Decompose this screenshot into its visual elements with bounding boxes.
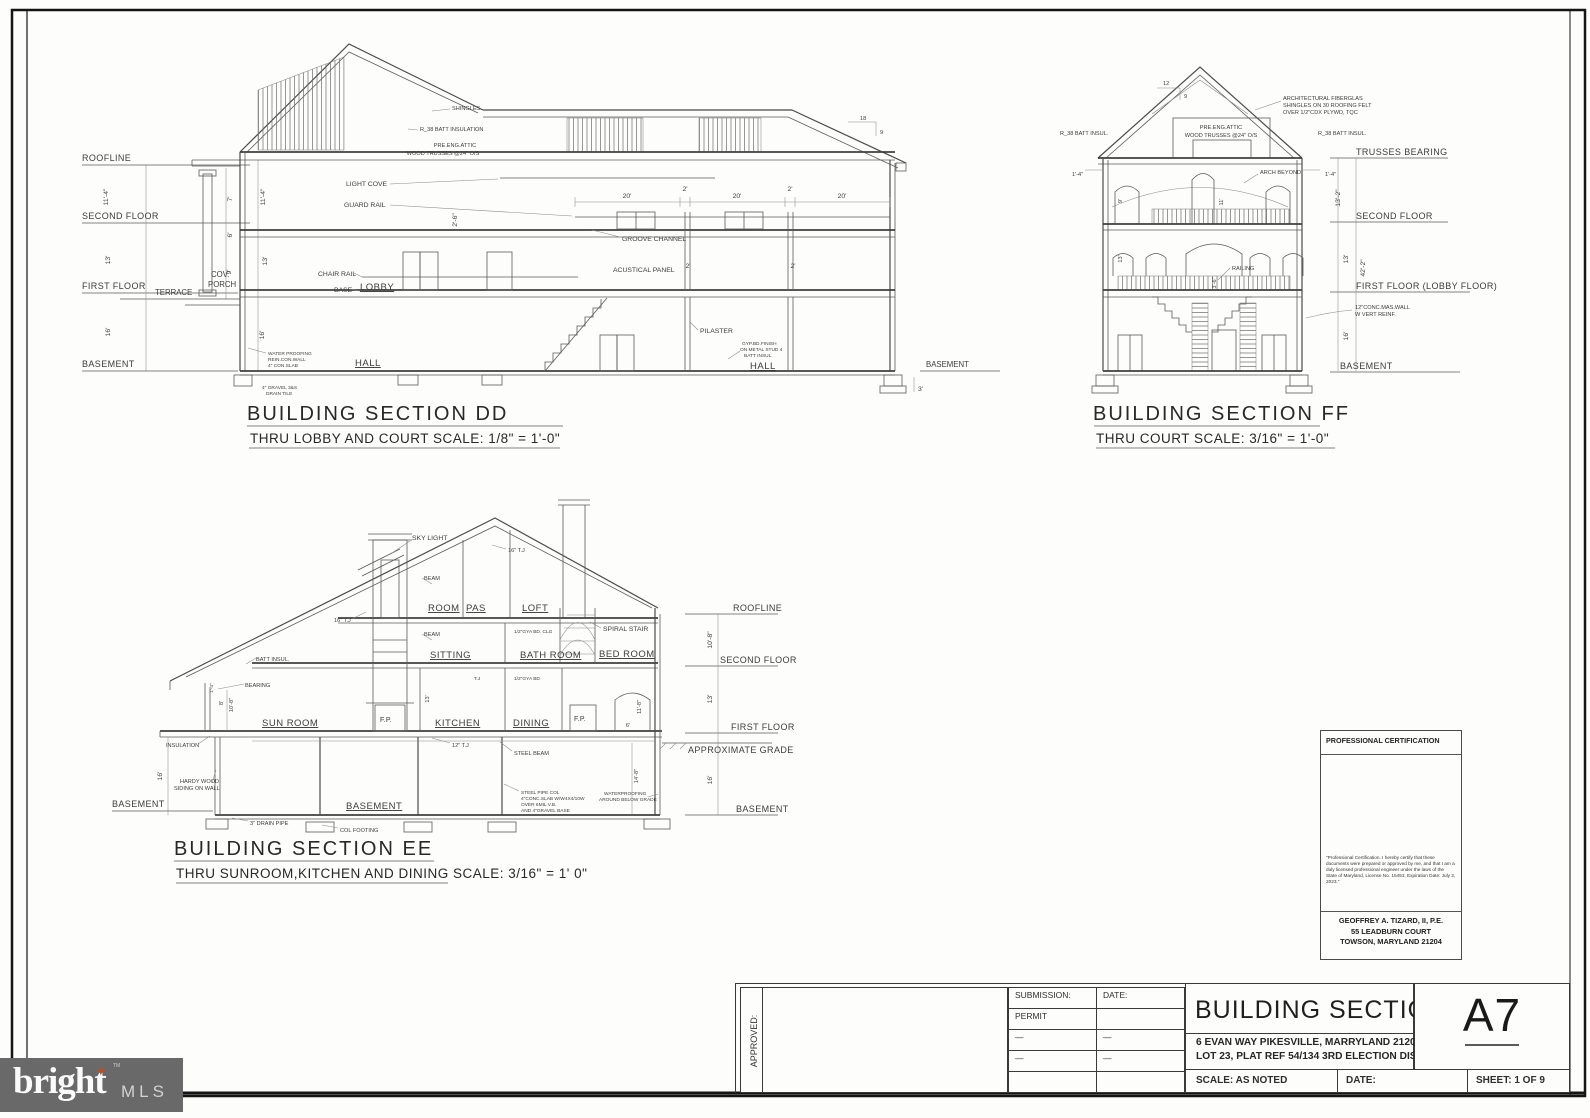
ee-room-bed: BED ROOM [599, 649, 655, 660]
dd-ann-lightcove: LIGHT COVE [346, 181, 388, 188]
dd-slope-9: 9 [880, 130, 883, 136]
dd-ann-batt: R_38 BATT INSULATION [420, 127, 483, 133]
bright-mls-logo: bright ✦ TM MLS [0, 1058, 183, 1112]
dd-title: BUILDING SECTION DD [247, 403, 508, 425]
ee-room-fp1: F.P. [380, 717, 392, 724]
engineer-address1: 55 LEADBURN COURT [1321, 927, 1461, 938]
sheet-number-underline [1465, 1044, 1519, 1046]
ff-slope-12: 12 [1163, 81, 1169, 87]
certification-body-text: "Professional Certification. I hereby ce… [1321, 855, 1461, 911]
ff-label-basement: BASEMENT [1340, 361, 1393, 371]
ee-dim-1-4: 1'-4" [209, 683, 215, 693]
dd-room-hall-left: HALL [355, 358, 381, 369]
dd-ann-attic1: PRE.ENG.ATTIC [434, 143, 476, 149]
ee-label-roofline: ROOFLINE [733, 603, 782, 613]
submission-dash: — [1009, 1051, 1096, 1071]
ee-ann-wp2: AROUND BELOW GRADE [599, 797, 657, 803]
dd-label-basement: BASEMENT [82, 359, 135, 369]
dd-dim-2-a: 2' [682, 186, 687, 193]
ff-subtitle: THRU COURT SCALE: 3/16" = 1'-0" [1096, 431, 1329, 446]
dd-ann-pilaster: PILASTER [700, 328, 733, 335]
dd-ann-porch: PORCH [208, 280, 236, 289]
titleblock-bottom-row: SCALE: AS NOTED DATE: SHEET: 1 OF 9 [1185, 1070, 1570, 1093]
dd-ann-gravel2: DRAIN TILE [266, 391, 292, 397]
ff-ann-shingles1: ARCHITECTURAL FIBERGLAS [1283, 96, 1363, 102]
dd-ann-gyp2: ON METAL STUD 4 [740, 347, 783, 353]
ee-ann-gyb2: 1/2"GYA BD [514, 676, 540, 682]
ee-ann-tj12: 12" T.J [452, 743, 469, 749]
dd-ann-attic2: WOOD TRUSSES @24" O/S [407, 151, 480, 157]
ee-room-room: ROOM [428, 603, 460, 614]
dd-dim-2-b: 2' [787, 186, 792, 193]
star-icon: ✦ [95, 1063, 107, 1080]
ee-room-bath: BATH ROOM [520, 650, 581, 661]
dd-label-first-floor: FIRST FLOOR [82, 281, 146, 291]
dd-dim-20-c: 20' [838, 193, 847, 200]
ee-room-sitting: SITTING [430, 650, 471, 661]
dd-dim-3: 3' [918, 386, 923, 393]
ff-dim-42-2: 42'-2" [1360, 259, 1367, 277]
ee-ann-tj: T.J [474, 676, 481, 682]
ff-ann-shingles3: OVER 1/2"CDX PLYWD, TQC [1283, 110, 1358, 116]
ff-ann-batt-right: R_38 BATT INSUL. [1318, 131, 1367, 137]
project-address-line1: 6 EVAN WAY PIKESVILLE, MARRYLAND 21208 [1186, 1034, 1413, 1048]
ff-label-first-floor: FIRST FLOOR (LOBBY FLOOR) [1356, 281, 1497, 291]
ee-room-loft: LOFT [522, 603, 548, 614]
engineer-name: GEOFFREY A. TIZARD, II, P.E. [1321, 916, 1461, 927]
dd-slope-18: 18 [860, 116, 866, 122]
ff-ann-railing: RAILING [1232, 266, 1254, 272]
ff-label-second-floor: SECOND FLOOR [1356, 211, 1433, 221]
sheet-count-label: SHEET: 1 OF 9 [1468, 1070, 1569, 1092]
table-row: — — [1009, 1050, 1184, 1071]
dd-ann-base: BASE [334, 287, 353, 294]
ff-dim-11: 11' [1219, 199, 1225, 206]
engineer-name-block: GEOFFREY A. TIZARD, II, P.E. 55 LEADBURN… [1321, 911, 1461, 948]
table-row: PERMIT [1009, 1008, 1184, 1029]
certification-blank-area [1321, 755, 1461, 855]
trademark-symbol: TM [113, 1063, 120, 1069]
date-dash: — [1096, 1030, 1184, 1050]
ee-dim-13-right: 13' [707, 695, 714, 704]
dd-label-second-floor: SECOND FLOOR [82, 211, 159, 221]
table-row: — — [1009, 1029, 1184, 1050]
ee-room-pas: PAS [466, 603, 486, 614]
dd-ann-wp1: WATER PROOFING [268, 351, 312, 357]
ee-label-first-floor: FIRST FLOOR [731, 722, 795, 732]
dd-dim-11-4-inner: 11'-4" [260, 188, 267, 205]
professional-certification-box: PROFESSIONAL CERTIFICATION "Professional… [1320, 730, 1462, 960]
ee-dim-10-8-right: 10'-8" [707, 631, 714, 649]
ee-room-basement: BASEMENT [346, 801, 402, 812]
permit-label: PERMIT [1009, 1009, 1096, 1029]
ff-dim-13: 13' [1343, 255, 1350, 264]
ff-dim-1-4-right: 1'-4" [1325, 172, 1336, 178]
dd-dim-13: 13' [105, 256, 112, 265]
drawing-sheet: ROOFLINE SECOND FLOOR FIRST FLOOR TERRAC… [0, 0, 1590, 1118]
approval-blank-box [762, 987, 1008, 1093]
ee-ann-gyb1: 1/2"GYA BD. CLG [514, 629, 553, 635]
sheet-number: A7 [1415, 988, 1569, 1042]
project-address-line2: LOT 23, PLAT REF 54/134 3RD ELECTION DIS… [1186, 1048, 1413, 1062]
table-row: SUBMISSION: DATE: [1009, 988, 1184, 1008]
date-label: DATE: [1096, 988, 1184, 1008]
ee-ann-insulation: INSULATION [166, 743, 199, 749]
ee-dim-8: 8' [219, 701, 225, 705]
ee-dim-16-right: 16' [707, 776, 714, 785]
dd-dim-7: 7' [227, 196, 234, 201]
dd-ann-gravel1: 4" GRAVEL 3&S [262, 385, 297, 391]
ee-ann-beam2: BEAM [424, 632, 440, 638]
ee-title: BUILDING SECTION EE [174, 838, 433, 860]
ee-ann-steelbeam: STEEL BEAM [514, 751, 549, 757]
ff-ann-attic1: PRE.ENG.ATTIC [1200, 125, 1242, 131]
dd-ann-wp2: REIN.CON.WALL [268, 357, 306, 363]
ff-ann-batt-left: R_38 BATT INSUL. [1060, 131, 1109, 137]
dd-ann-gyp3: BATT INSUL. [744, 353, 773, 359]
ff-dim-3-6: 3'-6" [1212, 277, 1218, 288]
ee-dim-14-8: 14'-8" [634, 769, 640, 783]
ee-ann-spiral: SPIRAL STAIR [603, 626, 648, 633]
ff-ann-shingles2: SHINGLES ON 30 ROOFING FELT [1283, 103, 1372, 109]
sheet-title: BUILDING SECTION [1186, 984, 1413, 1034]
section-ff: TRUSSES BEARING SECOND FLOOR FIRST FLOOR… [1060, 67, 1497, 448]
ee-ann-drain: 3" DRAIN PIPE [250, 821, 289, 827]
ee-ann-tj16-right: 16" T.J [508, 548, 525, 554]
ff-dim-9: 9' [1118, 199, 1124, 203]
ff-slope-9: 9 [1184, 94, 1187, 100]
dd-ann-gyp1: GYP.BD.FINISH [742, 341, 777, 347]
ee-subtitle: THRU SUNROOM,KITCHEN AND DINING SCALE: 3… [176, 866, 587, 881]
ee-dim-10-8-left: 10'-8" [229, 698, 235, 712]
ff-dim-1-4-left: 1'-4" [1072, 172, 1083, 178]
dd-ann-shingles: SHINGLES [452, 106, 481, 112]
titleblock-main-cell: BUILDING SECTION 6 EVAN WAY PIKESVILLE, … [1185, 983, 1414, 1070]
certification-title: PROFESSIONAL CERTIFICATION [1321, 731, 1461, 755]
ff-ann-wall1: 12"CONC.MAS.WALL [1355, 305, 1410, 311]
logo-brand-text: bright [13, 1060, 106, 1103]
date-dash: — [1096, 1051, 1184, 1071]
approved-cell: APPROVED: [740, 987, 763, 1093]
submission-label: SUBMISSION: [1009, 988, 1096, 1008]
dd-dim-13-inner: 13' [262, 257, 269, 266]
dd-room-lobby: LOBBY [360, 282, 394, 293]
ee-ann-colfoot: COL FOOTING [340, 828, 378, 834]
ee-dim-6: 6' [626, 723, 630, 729]
ee-dim-13-mid: 13' [425, 695, 431, 702]
approved-label: APPROVED: [749, 996, 759, 1086]
ff-ann-attic2: WOOD TRUSSES @24" O/S [1185, 133, 1258, 139]
dd-dim-16-inner: 16' [259, 331, 266, 340]
dd-label-terrace: TERRACE [155, 288, 192, 297]
ee-ann-hardy1: HARDY WOOD [180, 779, 219, 785]
dd-building-lines [192, 44, 914, 448]
table-row [1009, 1071, 1184, 1092]
dd-label-basement-right: BASEMENT [926, 360, 969, 369]
dd-dim-16: 16' [105, 328, 112, 337]
ee-room-kitchen: KITCHEN [435, 718, 480, 729]
ee-ann-tj16-left: 16" T.J [334, 618, 351, 624]
sheet-number-cell: A7 [1414, 983, 1570, 1070]
dd-room-hall-right: HALL [750, 361, 776, 372]
dd-label-roofline: ROOFLINE [82, 153, 131, 163]
permit-date-cell [1096, 1009, 1184, 1029]
date-label-bottom: DATE: [1338, 1070, 1468, 1092]
ee-ann-wp1: WATERPROOFING [604, 791, 647, 797]
submission-dash: — [1009, 1030, 1096, 1050]
logo-mls-text: MLS [121, 1082, 168, 1102]
dd-ann-wp3: 4" CON.SLAB [268, 363, 298, 369]
ee-ann-bearing: BEARING [245, 683, 270, 689]
dd-dim-20-b: 20' [733, 193, 742, 200]
ee-room-dining: DINING [513, 718, 549, 729]
dd-ann-chairrail: CHAIR RAIL [318, 271, 356, 278]
empty-cell [1096, 1072, 1184, 1092]
dd-ann-acoustic: ACUSTICAL PANEL [613, 267, 675, 274]
ee-ann-pipe2: 4"CONC.SLAB W/W4X4/10W [521, 796, 585, 802]
ee-room-sun: SUN ROOM [262, 718, 318, 729]
ee-dim-11-8: 11'-8" [637, 700, 643, 714]
dd-dim-20-a: 20' [623, 193, 632, 200]
dd-dim-11-4: 11'-4" [103, 188, 110, 205]
engineer-address2: TOWSON, MARYLAND 21204 [1321, 937, 1461, 948]
ee-label-second-floor: SECOND FLOOR [720, 655, 797, 665]
ee-ann-pipe3: OVER 6MIL V.B. [521, 802, 556, 808]
ee-ann-pipe1: STEEL PIPE COL [521, 790, 560, 796]
dd-dim-2-6: 2'-6" [452, 213, 459, 227]
dd-ann-guardrail: GUARD RAIL [344, 202, 386, 209]
dd-subtitle: THRU LOBBY AND COURT SCALE: 1/8" = 1'-0" [250, 431, 560, 446]
dd-dim-2-c: 2' [685, 263, 690, 270]
ee-label-grade: APPROXIMATE GRADE [688, 745, 794, 755]
scale-label: SCALE: AS NOTED [1186, 1070, 1338, 1092]
ff-ann-wall2: W VERT REINF. [1355, 312, 1396, 318]
section-dd: ROOFLINE SECOND FLOOR FIRST FLOOR TERRAC… [82, 44, 1000, 448]
ee-label-basement-right: BASEMENT [736, 804, 789, 814]
section-ee: ROOFLINE SECOND FLOOR FIRST FLOOR APPROX… [112, 500, 797, 883]
ee-ann-beam1: BEAM [424, 576, 440, 582]
ee-ann-pipe4: AND 4"GRAVEL BASE [521, 808, 570, 814]
ff-title: BUILDING SECTION FF [1093, 403, 1350, 425]
dd-dim-6: 6' [227, 232, 234, 237]
ee-ann-skylight: SKY LIGHT [412, 535, 447, 542]
ff-building-lines [1085, 67, 1470, 448]
dd-ann-cov: COV. [211, 270, 229, 279]
empty-cell [1009, 1072, 1096, 1092]
ee-ann-hardy2: SIDING ON WALL [174, 786, 220, 792]
ff-dim-13-left: 13' [1118, 255, 1124, 262]
ee-dim-16-left: 16' [157, 772, 164, 781]
ee-label-basement-left: BASEMENT [112, 799, 165, 809]
ee-room-fp2: F.P. [574, 716, 586, 723]
ee-ann-batt: BATT INSUL. [256, 657, 290, 663]
ff-dim-13-2: 13'-2" [1335, 189, 1342, 207]
dd-dim-2-d: 2' [790, 263, 795, 270]
dd-level-lines [82, 160, 1000, 371]
ff-ann-arch-beyond: ARCH BEYOND [1260, 170, 1301, 176]
ff-dim-16: 16' [1343, 332, 1350, 341]
ff-label-trusses-bearing: TRUSSES BEARING [1356, 147, 1448, 157]
submission-table: SUBMISSION: DATE: PERMIT — — — — [1008, 987, 1185, 1093]
dd-ann-groove: GROOVE CHANNEL [622, 236, 686, 243]
